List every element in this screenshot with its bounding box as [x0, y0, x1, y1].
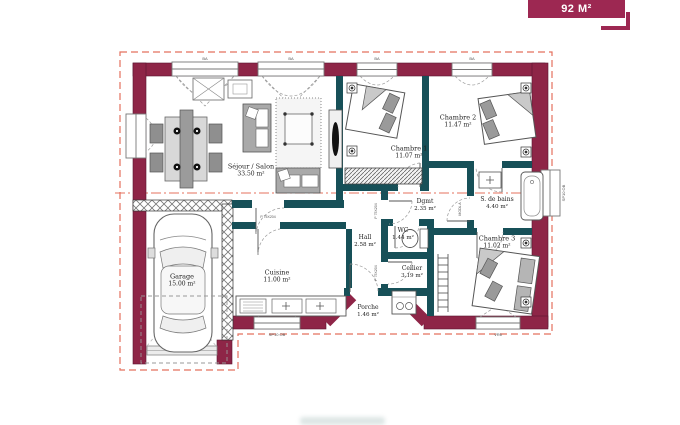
kitchen-window-code: SP10 OB: [269, 332, 286, 337]
rear-window-code: VR6: [494, 332, 503, 337]
door-code: P 75X204: [374, 265, 378, 280]
sofa-horizontal: [276, 168, 320, 193]
floor-plan-drawing: BA BA BA BA SP10 OB SP10 OB VR6 P 75X204…: [0, 0, 680, 425]
window-code: BA: [288, 56, 294, 61]
wall-left: [133, 63, 146, 364]
room-label-bedroom3: Chambre 3 11.02 m²: [479, 234, 516, 249]
bathtub: [521, 172, 543, 220]
tv-console: [329, 110, 342, 168]
total-area-label: 92 M²: [561, 3, 592, 15]
door-kitchen: [258, 229, 280, 255]
door-code: P 75X204: [260, 215, 275, 219]
window-code: BA: [202, 56, 208, 61]
window-code: BA: [469, 56, 475, 61]
room-label-bathroom: S. de bains 4.40 m²: [480, 196, 513, 210]
door-code: P 75X204: [374, 203, 378, 218]
wall-garage-right: [222, 204, 233, 340]
badge-corner-bracket: [601, 12, 630, 30]
room-label-garage: Garage 15.00 m²: [168, 272, 195, 287]
kitchen-counter: [236, 296, 346, 316]
attic-ladder: [438, 254, 448, 312]
window-code: BA: [374, 56, 380, 61]
washing-machine: [392, 291, 416, 314]
room-label-bedroom1: Chambre 1 11.07 m²: [391, 144, 428, 159]
bathroom-sink: [479, 172, 501, 188]
room-label-wc: WC 1.44 m²: [392, 227, 414, 241]
room-label-kitchen: Cuisine 11.00 m²: [263, 268, 290, 283]
room-label-bedroom2: Chambre 2 11.47 m²: [440, 113, 477, 128]
dining-set: [150, 110, 222, 188]
room-label-porch: Porche 1.46 m²: [357, 304, 379, 318]
door-living-hall: [256, 208, 284, 234]
bath-door-code: MODL A: [458, 202, 462, 216]
room-label-dgmt: Dgmt 2.35 m²: [414, 198, 436, 212]
window-bathroom: [541, 170, 560, 216]
sofa-vertical: [243, 104, 271, 152]
room-label-living: Séjour / Salon 33.50 m²: [228, 162, 274, 177]
floor-plan-page: BA BA BA BA SP10 OB SP10 OB VR6 P 75X204…: [0, 0, 680, 425]
partial-logo: [300, 417, 385, 425]
sideboard: [193, 78, 252, 100]
bath-window-code: SP10 OB: [561, 184, 566, 201]
wall-garage-stub: [217, 340, 232, 364]
room-label-cellier: Cellier 3.19 m²: [401, 265, 423, 279]
wall-garage-top: [133, 200, 232, 211]
rug: [276, 98, 321, 168]
room-label-hall: Hall 2.58 m²: [354, 234, 376, 248]
wardrobe-bedroom1: [345, 168, 422, 184]
bed-bedroom2: [478, 91, 536, 144]
